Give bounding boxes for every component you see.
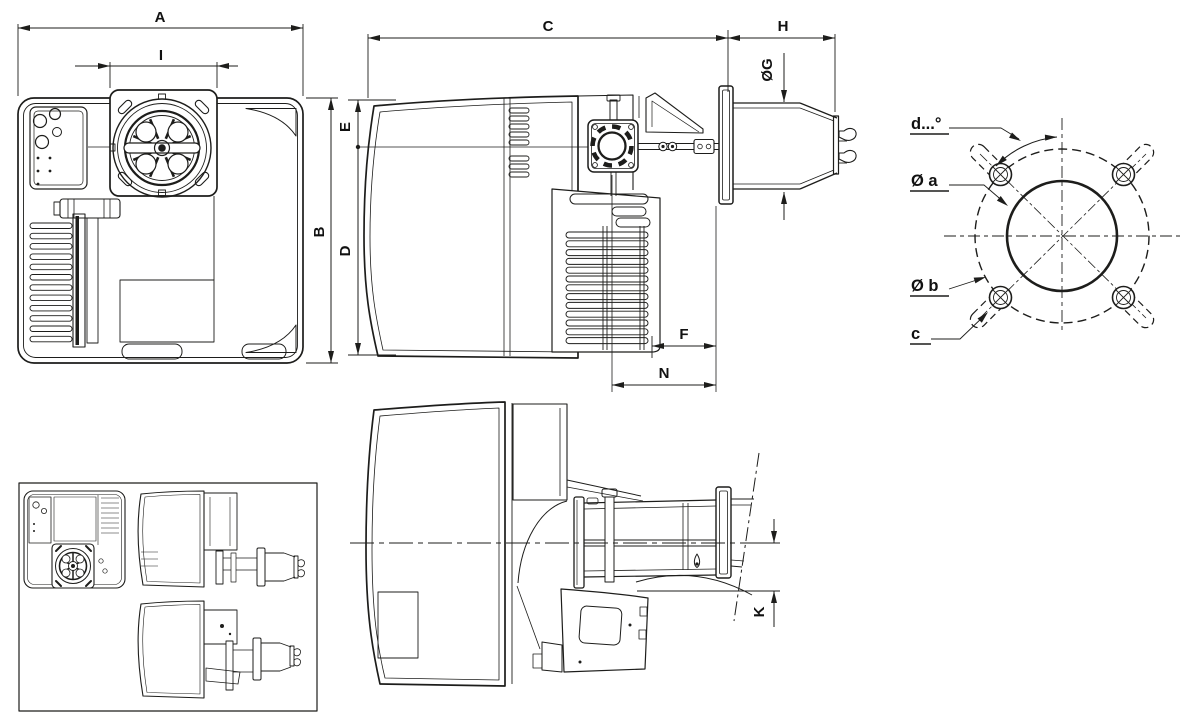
detail-dot	[103, 569, 107, 573]
dim-label-n: N	[659, 365, 670, 382]
arrowhead	[355, 343, 361, 355]
leader-line	[949, 185, 1005, 203]
panel-dot	[49, 170, 52, 173]
dim-label-f: F	[679, 326, 688, 343]
electrode	[839, 128, 856, 140]
fan-hole	[168, 154, 188, 174]
fin	[30, 264, 72, 270]
stud	[610, 100, 617, 120]
fin	[30, 326, 72, 332]
tube-stub	[731, 560, 744, 561]
fan-hole	[76, 555, 84, 563]
tube-end-cap	[294, 556, 298, 578]
grille-bar	[509, 156, 529, 161]
arrowhead	[18, 25, 30, 31]
angle-label: d...°	[911, 115, 941, 133]
dim-label-g: ØG	[759, 58, 776, 81]
arrowhead	[771, 591, 777, 603]
flange-labels: d...° Ø a Ø b c	[910, 115, 1022, 344]
panel-button	[41, 508, 46, 513]
panel-button	[53, 128, 62, 137]
fan-hole	[136, 122, 156, 142]
support-bracket	[646, 93, 703, 133]
flange-pattern-view: d...° Ø a Ø b c	[910, 115, 1180, 344]
detail-dot	[99, 559, 103, 563]
grille-bar	[509, 164, 529, 169]
tube-cone	[280, 667, 291, 671]
stud-bolt	[231, 553, 236, 582]
bolt-hole	[1113, 287, 1135, 309]
fin	[30, 295, 72, 301]
box-bracket-step	[533, 654, 542, 668]
arrowhead	[771, 531, 777, 543]
mounting-flange	[719, 86, 733, 204]
inner-compartment	[54, 497, 96, 541]
dimension-H: H	[728, 18, 835, 112]
mounting-flange	[257, 548, 265, 586]
technical-drawing-canvas: A I B E D	[0, 0, 1200, 719]
arrowhead	[728, 35, 740, 41]
arrowhead	[217, 63, 229, 69]
fin	[30, 233, 72, 239]
hood-inner	[143, 495, 200, 584]
fin	[30, 223, 72, 229]
swing-arc	[636, 575, 752, 595]
bracket	[206, 668, 240, 684]
fin	[30, 244, 72, 250]
air-intake-grille	[509, 108, 529, 177]
gun-assembly	[574, 487, 754, 588]
gas-pipe	[60, 199, 120, 218]
tube-wall	[584, 506, 716, 509]
arrowhead	[1045, 134, 1057, 141]
variants-inset	[19, 483, 317, 711]
electrode	[294, 659, 301, 666]
hood-inner-line	[370, 102, 572, 352]
dim-label-a: A	[155, 9, 166, 26]
arrowhead	[368, 35, 380, 41]
screw-dot	[579, 661, 582, 664]
panel-dot	[33, 530, 35, 532]
pump-bore	[599, 133, 626, 160]
angle-arc	[996, 137, 1057, 166]
dimension-F: F	[652, 326, 716, 358]
fin-rail-core	[76, 216, 80, 345]
fan-scroll	[518, 501, 567, 583]
fin	[30, 305, 72, 311]
gun-plate	[216, 551, 223, 584]
foot-pad	[122, 344, 182, 359]
gun-plate	[574, 497, 584, 588]
pipe-cap	[54, 202, 60, 215]
fan-hub-center	[158, 144, 166, 152]
dim-label-b: B	[311, 226, 328, 237]
air-duct	[513, 404, 567, 500]
inner-diameter-label: Ø a	[911, 172, 938, 190]
fin	[30, 275, 72, 281]
hood-inner-line	[372, 408, 499, 680]
pump-plate	[588, 95, 638, 196]
reference-dot	[356, 145, 360, 149]
arrowhead	[291, 25, 303, 31]
tube-cone	[800, 173, 837, 189]
fin	[30, 285, 72, 291]
side-view	[364, 86, 856, 358]
flame-sensor-dot	[695, 562, 698, 565]
blast-tube	[733, 103, 856, 189]
slot-label: c	[911, 325, 920, 343]
hood-outline	[366, 402, 505, 686]
dimension-E-D: E D	[337, 100, 588, 355]
tube-stub	[731, 566, 742, 567]
dim-label-d: D	[337, 245, 354, 256]
tilt-centerline	[734, 453, 759, 621]
hood-inner	[143, 605, 200, 695]
scroll-link	[517, 586, 540, 649]
grille-bar	[509, 116, 529, 121]
arrowhead	[328, 98, 334, 110]
tube-wall	[584, 569, 716, 571]
fan-flange-plate	[110, 90, 217, 197]
burner-dimension-drawing: A I B E D	[0, 0, 1200, 719]
panel-dot	[37, 157, 40, 160]
box-bracket	[542, 642, 562, 672]
fin	[30, 254, 72, 260]
fin	[30, 316, 72, 322]
arrowhead	[328, 351, 334, 363]
electrode	[294, 649, 301, 656]
fan-hole	[62, 569, 70, 577]
panel-button	[36, 136, 49, 149]
control-box	[533, 589, 648, 672]
screw-dot	[229, 633, 231, 635]
arrowhead	[781, 192, 787, 204]
control-panel	[29, 497, 51, 543]
bolt-hole	[990, 287, 1012, 309]
fin	[30, 336, 72, 342]
heat-sink	[30, 214, 98, 347]
dim-label-k: K	[751, 606, 768, 617]
electrode	[839, 150, 856, 162]
grille-bar	[509, 124, 529, 129]
fan-hub-center	[71, 564, 75, 568]
bolt-circle-label: Ø b	[911, 277, 939, 295]
panel-dot	[37, 183, 40, 186]
mini-top-view	[24, 491, 125, 588]
grille-bar	[509, 132, 529, 137]
bolt-hole	[990, 164, 1012, 186]
tube-cone	[280, 643, 291, 647]
dimension-C: C	[368, 18, 728, 98]
top-view	[18, 90, 303, 363]
dimension-I: I	[75, 47, 238, 88]
foot-pad	[242, 344, 286, 359]
hood-outline	[138, 601, 204, 698]
panel-dot	[49, 157, 52, 160]
service-door	[378, 592, 418, 658]
panel-button	[33, 502, 39, 508]
inner-compartment	[120, 280, 214, 342]
arrowhead	[355, 100, 361, 112]
panel-button	[50, 109, 61, 120]
arrowhead	[704, 382, 716, 388]
arrowhead	[98, 63, 110, 69]
panel-dot	[37, 170, 40, 173]
hood-outline	[138, 491, 204, 587]
mini-side-view-1	[138, 491, 304, 587]
arrowhead	[716, 35, 728, 41]
tube-end-cap	[290, 646, 294, 666]
panel-button	[34, 115, 47, 128]
dim-label-e: E	[337, 122, 354, 132]
grille-bar	[509, 108, 529, 113]
support-bracket-inner	[652, 101, 699, 132]
bottom-side-view	[350, 402, 762, 686]
screw-dot	[220, 624, 224, 628]
arrowhead	[1009, 133, 1022, 144]
air-duct	[204, 493, 237, 550]
arrowhead	[612, 382, 624, 388]
corner-gusset	[246, 109, 296, 137]
mini-side-view-2	[138, 601, 300, 698]
mounting-flange	[253, 638, 261, 680]
arrowhead	[781, 90, 787, 102]
fan-hole	[76, 569, 84, 577]
grille-bar	[509, 172, 529, 177]
stud-bolt	[605, 497, 614, 582]
hood-outline	[364, 96, 578, 358]
bolt-hole	[1113, 164, 1135, 186]
tube-cone	[284, 553, 295, 557]
electrode	[298, 560, 305, 567]
control-box-outline	[561, 589, 648, 672]
dimension-K: K	[637, 519, 780, 627]
arrowhead	[823, 35, 835, 41]
electrode	[298, 570, 305, 577]
fan-hole	[168, 122, 188, 142]
tube-cone	[284, 577, 295, 581]
tube-wall	[584, 500, 716, 503]
fin-rail	[87, 218, 98, 343]
dim-label-i: I	[159, 47, 163, 64]
panel-dot	[33, 523, 35, 525]
rod-pin	[671, 145, 674, 148]
inset-border	[19, 483, 317, 711]
dimension-G: ØG	[759, 53, 787, 220]
dim-label-h: H	[778, 18, 789, 35]
mounting-flange	[716, 487, 731, 578]
fan-hole	[62, 555, 70, 563]
dimension-B: B	[306, 98, 338, 363]
screw-dot	[629, 624, 632, 627]
corner-gusset	[246, 325, 296, 353]
rod-pin	[661, 145, 664, 148]
leader-line	[949, 128, 1019, 139]
tube-end-cap	[834, 116, 839, 174]
arrowhead	[704, 343, 716, 349]
dim-label-c: C	[543, 18, 554, 35]
grille-bar	[509, 140, 529, 145]
fan-hole	[136, 154, 156, 174]
